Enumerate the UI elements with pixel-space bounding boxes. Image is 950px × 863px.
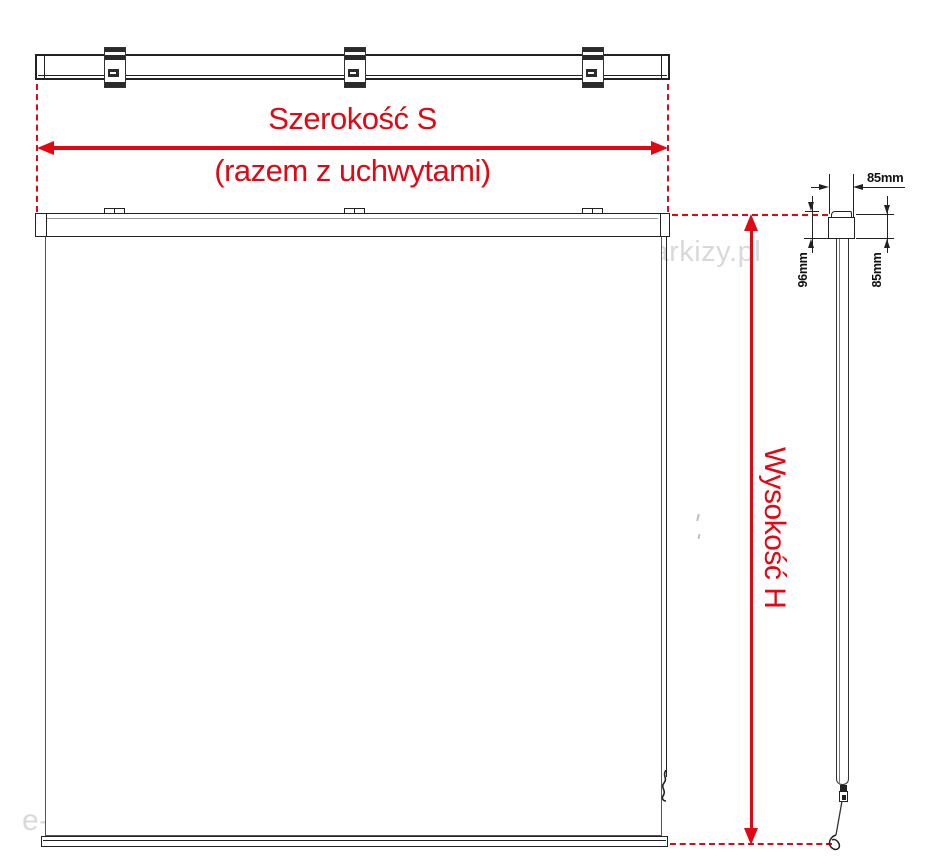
sv-dim-top-arrow-left	[819, 184, 829, 190]
side-view-cassette	[828, 217, 855, 239]
bracket-band	[583, 82, 603, 87]
bracket-band	[105, 55, 125, 60]
bracket-band	[345, 48, 365, 52]
roller-blind-dimension-diagram: e-markizy.pl e-markizy.pl Szerokość S (r…	[0, 0, 950, 863]
height-arrow	[750, 229, 754, 829]
smudge-mark-2	[697, 534, 700, 539]
bracket-clip	[108, 69, 119, 77]
bracket-band	[583, 55, 603, 60]
bracket-clip	[586, 69, 597, 77]
bracket-clip	[348, 69, 359, 77]
smudge-mark-1	[696, 514, 700, 521]
bracket-band	[583, 48, 603, 52]
side-chain-cord	[666, 237, 667, 777]
sv-ext-line-top-left	[829, 174, 830, 214]
bracket-band	[105, 48, 125, 52]
side-view-weight-core	[842, 795, 846, 800]
side-view-fabric	[836, 239, 849, 785]
mounting-bracket-1	[104, 47, 126, 88]
sv-dim-right-label: 85mm	[870, 248, 884, 292]
bracket-band	[345, 82, 365, 87]
chain-connector	[653, 770, 673, 802]
sv-dim-top-arrow-right	[853, 184, 863, 190]
bracket-band	[105, 82, 125, 87]
sv-dim-left-arrow-top	[808, 202, 814, 211]
sv-dim-right-arrow-top	[884, 205, 890, 214]
sv-ext-line-top-right	[853, 174, 854, 218]
front-cassette-endcap-right	[660, 214, 661, 236]
side-view-cord-hook	[824, 800, 846, 858]
bracket-band	[345, 55, 365, 60]
front-cassette-inner-line	[47, 218, 658, 219]
mounting-bracket-3	[582, 47, 604, 88]
sv-dim-left-label: 96mm	[796, 248, 810, 292]
bottom-bar	[41, 836, 668, 847]
height-arrowhead-bottom	[744, 828, 758, 845]
mounting-bracket-2	[344, 47, 366, 88]
height-label: Wysokość H	[757, 447, 791, 608]
fabric-panel	[45, 237, 662, 836]
width-label-line1: Szerokość S	[35, 101, 670, 137]
sv-dim-top-label: 85mm	[867, 170, 903, 185]
width-arrow	[53, 146, 652, 150]
sv-dim-right-arrow-bottom	[884, 239, 890, 248]
sv-dim-left-arrow-bottom	[808, 239, 814, 248]
height-arrowhead-top	[744, 214, 758, 231]
sv-dim-top-line-right	[863, 187, 905, 188]
width-label-line2: (razem z uchwytami)	[35, 153, 670, 189]
